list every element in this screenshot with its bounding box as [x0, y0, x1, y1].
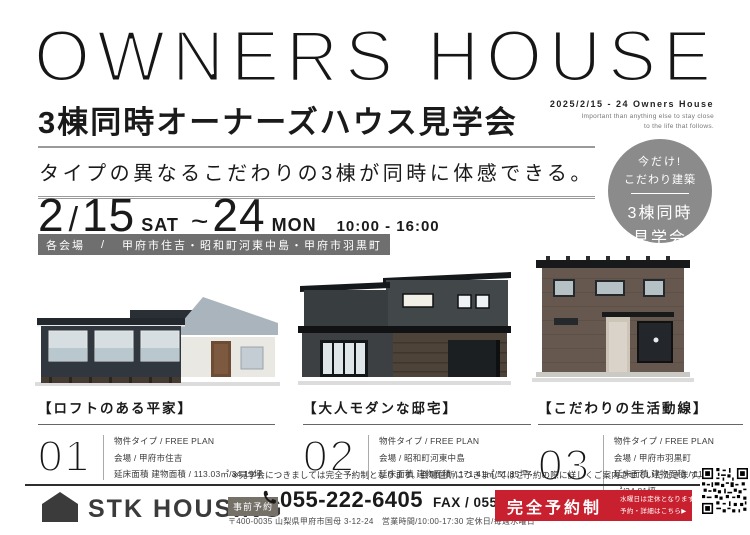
event-time: 10:00 - 16:00 [337, 218, 440, 235]
house-1-spec-type: 物件タイプ / FREE PLAN [114, 433, 263, 450]
reservation-note: ※見学会につきましては完全予約制となります。会場住所につきましてはご予約の際に詳… [146, 469, 706, 481]
house-render-3 [532, 256, 694, 391]
house-1-number: 01 [38, 435, 91, 479]
badge-line2: こだわり建築 [608, 171, 712, 187]
company-address: 〒400-0035 山梨県甲府市国母 3-12-24 営業時間/10:00-17… [228, 516, 535, 527]
phone-number[interactable]: 055-222-6405 [280, 487, 423, 513]
badge-line4: 見学会 [608, 224, 712, 248]
qr-code[interactable] [702, 468, 748, 514]
house-3-name: 【こだわりの生活動線】 [538, 397, 743, 425]
header-right-block: 2025/2/15 - 24 Owners House Important th… [550, 99, 714, 133]
header-english-line1: Important than anything else to stay clo… [550, 112, 714, 122]
house-3-spec-venue: 会場 / 甲府市羽黒町 [614, 450, 743, 467]
house-3-divider [603, 435, 604, 496]
house-render-1 [35, 293, 280, 393]
red-box-sub2: 予約・詳細はこちら▶ [620, 506, 701, 518]
reservation-required-label: 完全予約制 [507, 494, 602, 518]
house-2-spec-venue: 会場 / 昭和町河東中島 [379, 450, 528, 467]
venue-bar-label: 各会場 [46, 237, 85, 253]
header-english-line2: to the life that follows. [550, 122, 714, 132]
venue-bar-separator: / [101, 239, 106, 251]
badge-line3: 3棟同時 [608, 199, 712, 223]
house-render-2 [298, 270, 513, 393]
header-date-small: 2025/2/15 - 24 Owners House [550, 99, 714, 109]
reservation-required-banner[interactable]: 完全予約制 水曜日は定休となります。 予約・詳細はこちら▶ [495, 490, 692, 521]
venue-bar-locations: 甲府市住吉・昭和町河東中島・甲府市羽黒町 [122, 237, 382, 253]
house-2-name: 【大人モダンな邸宅】 [303, 397, 531, 425]
house-3-spec-type: 物件タイプ / FREE PLAN [614, 433, 743, 450]
house-2-spec-type: 物件タイプ / FREE PLAN [379, 433, 528, 450]
red-box-sub1: 水曜日は定休となります。 [620, 494, 701, 506]
house-1-divider [103, 435, 104, 480]
footer-divider [25, 484, 700, 486]
phone-icon [262, 489, 277, 511]
header-english-copy: Important than anything else to stay clo… [550, 112, 714, 133]
page-subtitle: 3棟同時オーナーズハウス見学会 [38, 97, 518, 142]
house-3-number: 03 [538, 444, 591, 488]
badge-divider [631, 193, 689, 194]
badge-line1: 今だけ! [608, 153, 712, 169]
page-title: OWNERS HOUSE [34, 16, 718, 98]
event-dow-start: SAT [141, 215, 179, 236]
red-box-sub-text: 水曜日は定休となります。 予約・詳細はこちら▶ [620, 494, 701, 517]
venue-bar: 各会場 / 甲府市住吉・昭和町河東中島・甲府市羽黒町 [38, 234, 390, 255]
event-circle-badge: 今だけ! こだわり建築 3棟同時 見学会 [608, 139, 712, 243]
house-logo-icon [42, 492, 78, 527]
event-dow-end: MON [272, 215, 317, 236]
flyer-canvas: OWNERS HOUSE 3棟同時オーナーズハウス見学会 2025/2/15 -… [0, 0, 750, 535]
house-1-name: 【ロフトのある平家】 [38, 397, 275, 425]
house-1-spec-venue: 会場 / 甲府市住吉 [114, 450, 263, 467]
